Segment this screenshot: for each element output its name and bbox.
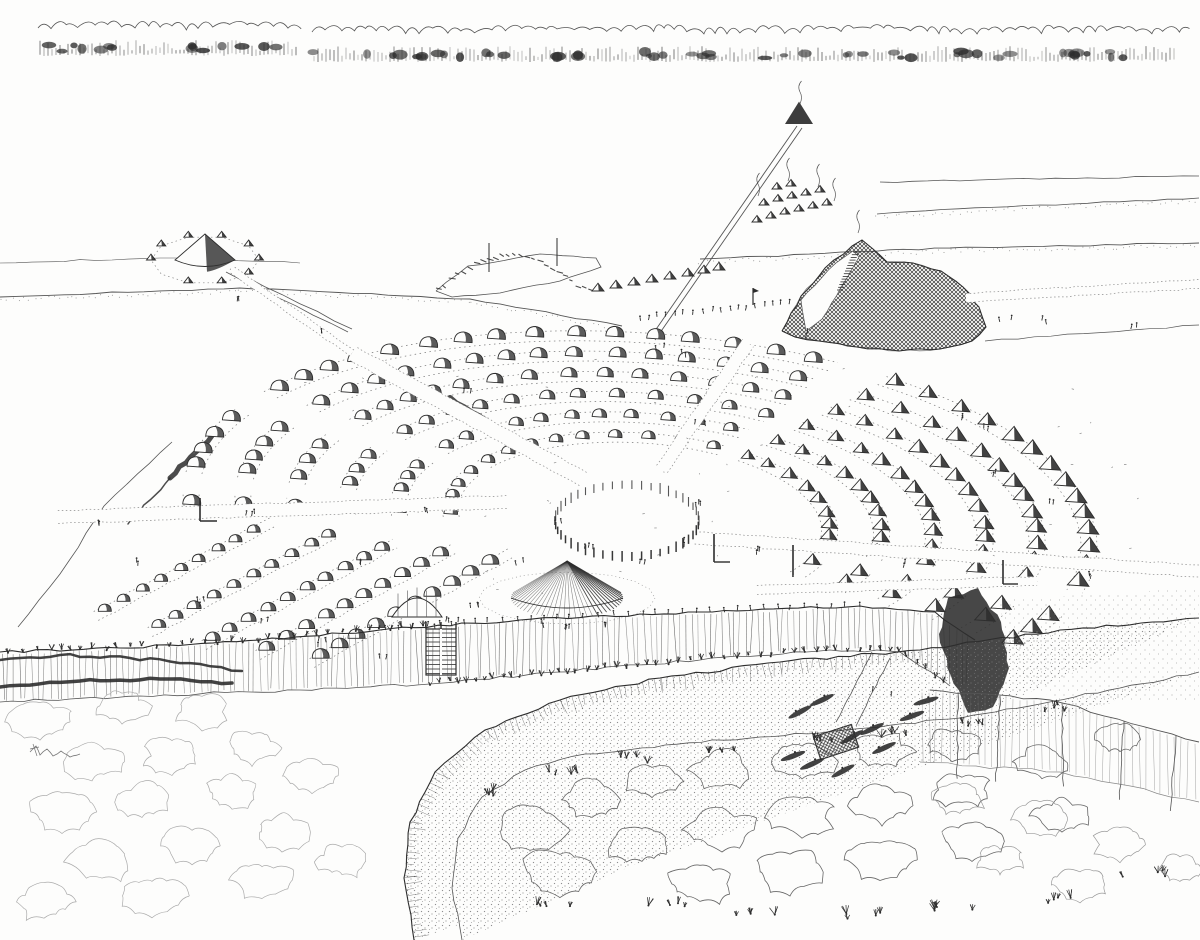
earthworks-reconstruction-drawing bbox=[0, 0, 1200, 940]
illustration-page bbox=[0, 0, 1200, 940]
